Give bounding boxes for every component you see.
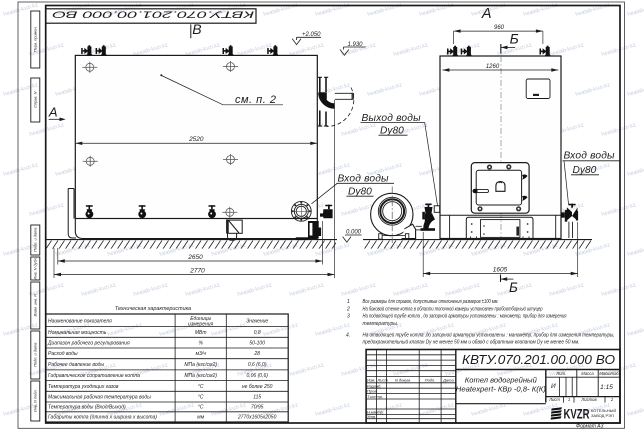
svg-text:КВТУ.070.201.00.000 ВО: КВТУ.070.201.00.000 ВО (462, 352, 615, 367)
svg-text:Dy80: Dy80 (348, 186, 372, 197)
svg-text:Котел водогрейный: Котел водогрейный (465, 375, 537, 384)
svg-text:Температура воды (Вход/Выход): Температура воды (Вход/Выход) (48, 405, 126, 411)
svg-text:Номинальная мощность: Номинальная мощность (48, 330, 107, 336)
svg-text:70/95: 70/95 (251, 405, 264, 411)
svg-text:В: В (192, 21, 201, 37)
svg-text:1.930: 1.930 (348, 42, 364, 48)
svg-text:Рабочее давление воды: Рабочее давление воды (48, 362, 104, 368)
svg-text:0,6 (6,0): 0,6 (6,0) (248, 362, 267, 368)
svg-text:Листов: Листов (580, 397, 597, 402)
svg-text:предохранительный клапан Dу н: предохранительный клапан Dу не менее 50 … (363, 339, 580, 346)
svg-text:Все размеры для справок, допус: Все размеры для справок, допустимые откл… (363, 299, 499, 305)
svg-text:Б: Б (510, 30, 519, 46)
svg-text:ЗАВОД РЭП: ЗАВОД РЭП (591, 413, 614, 418)
svg-text:Dy80: Dy80 (573, 165, 597, 176)
svg-text:0.000: 0.000 (346, 230, 362, 236)
svg-text:Диапазон рабочего регулировани: Диапазон рабочего регулирования (47, 340, 130, 346)
svg-text:Масса: Масса (581, 371, 594, 376)
svg-text:4.: 4. (346, 332, 350, 338)
svg-text:2520: 2520 (188, 136, 204, 143)
svg-text:1: 1 (347, 299, 350, 305)
svg-text:измерения: измерения (188, 321, 213, 327)
svg-text:Значение: Значение (246, 318, 268, 324)
svg-text:Выход воды: Выход воды (362, 113, 422, 124)
svg-text:см. п. 2: см. п. 2 (235, 94, 276, 106)
svg-text:Разраб.: Разраб. (367, 383, 381, 388)
svg-text:KVZR: KVZR (564, 406, 590, 422)
svg-text:1260: 1260 (486, 64, 500, 70)
svg-text:КВТУ.070.201.00.000 ВО: КВТУ.070.201.00.000 ВО (52, 9, 254, 19)
svg-text:2770: 2770 (189, 267, 205, 274)
svg-text:А: А (481, 6, 492, 22)
svg-text:+2.050: +2.050 (302, 32, 321, 38)
svg-text:Перв. примен.: Перв. примен. (33, 26, 38, 52)
svg-text:2770х1605х2050: 2770х1605х2050 (237, 415, 277, 421)
svg-text:Утв.: Утв. (367, 414, 376, 419)
svg-text:И: И (551, 383, 556, 390)
svg-text:На боковой стенке котла в обла: На боковой стенке котла в области топочн… (363, 305, 543, 312)
svg-text:2650: 2650 (187, 254, 203, 261)
svg-text:На подводящей трубе котла ,: На подводящей трубе котла , до запорной … (363, 313, 567, 320)
svg-text:Подп.: Подп. (425, 378, 436, 383)
svg-text:МПа (кгс/см2): МПа (кгс/см2) (184, 362, 217, 368)
svg-text:Б: Б (509, 280, 518, 295)
svg-text:Взам. инв. N: Взам. инв. N (33, 294, 38, 317)
svg-text:Справ. N: Справ. N (33, 91, 38, 107)
svg-text:На отводящей трубе котла ,до з: На отводящей трубе котла ,до запорной ар… (363, 331, 615, 338)
svg-text:1: 1 (568, 397, 570, 402)
svg-text:Формат А3: Формат А3 (576, 424, 604, 430)
svg-text:Подп. и дата: Подп. и дата (33, 342, 38, 367)
svg-text:Лист: Лист (377, 378, 389, 383)
svg-text:960: 960 (494, 25, 505, 31)
svg-text:Масштаб: Масштаб (599, 371, 619, 376)
svg-text:не более 250: не более 250 (242, 384, 273, 390)
svg-text:115: 115 (253, 394, 261, 400)
svg-text:Т.контр.: Т.контр. (367, 394, 383, 399)
svg-text:Вход воды: Вход воды (564, 151, 616, 162)
svg-text:3: 3 (347, 314, 350, 320)
svg-text:Расход воды: Расход воды (48, 351, 78, 357)
svg-text:Техническая характеристика: Техническая характеристика (115, 306, 191, 312)
svg-text:28: 28 (253, 351, 260, 357)
svg-text:0,06 (0,6): 0,06 (0,6) (246, 373, 268, 379)
svg-text:1605: 1605 (493, 266, 508, 273)
svg-text:Dy80: Dy80 (380, 125, 404, 136)
svg-text:0,8: 0,8 (254, 330, 261, 336)
svg-text:Дата: Дата (442, 378, 454, 383)
svg-text:температуры.: температуры. (363, 321, 399, 327)
svg-text:N докум.: N докум. (395, 378, 411, 383)
svg-text:Максимальная рабочая температу: Максимальная рабочая температура воды (48, 394, 151, 400)
svg-text:Инв. N дубл.: Инв. N дубл. (33, 257, 38, 280)
svg-text:МВт: МВт (195, 330, 207, 336)
svg-text:Подп. и дата: Подп. и дата (33, 227, 38, 252)
svg-text:°С: °С (198, 394, 204, 400)
svg-text:Инв. N подл.: Инв. N подл. (33, 389, 38, 412)
svg-text:мм: мм (197, 415, 204, 421)
svg-text:Heatexpert- КВр -0,8- К(К): Heatexpert- КВр -0,8- К(К) (456, 385, 546, 394)
svg-text:°С: °С (198, 384, 204, 390)
svg-text:Вход воды: Вход воды (338, 173, 390, 184)
svg-text:Габариты котла (длинна х ширин: Габариты котла (длинна х ширина х высота… (48, 415, 157, 421)
svg-text:Лит.: Лит. (555, 371, 566, 376)
svg-text:м3/ч: м3/ч (196, 351, 207, 357)
svg-text:Гидравлическое сопративление к: Гидравлическое сопративление котла (48, 373, 140, 379)
svg-text:Изм.: Изм. (367, 378, 376, 383)
svg-text:Пров.: Пров. (367, 389, 378, 394)
svg-text:°С: °С (198, 405, 204, 411)
svg-text:А: А (48, 105, 58, 120)
svg-text:%: % (198, 340, 203, 346)
svg-text:1:15: 1:15 (600, 384, 613, 391)
svg-text:2: 2 (610, 397, 614, 402)
svg-text:Лист: Лист (548, 397, 560, 402)
svg-text:50-100: 50-100 (249, 340, 265, 346)
svg-text:Температура уходящих газов: Температура уходящих газов (48, 384, 119, 390)
svg-text:МПа (кгс/см2): МПа (кгс/см2) (184, 373, 217, 379)
svg-text:Наименование показателя: Наименование показателя (48, 318, 112, 324)
svg-text:2: 2 (346, 306, 350, 312)
